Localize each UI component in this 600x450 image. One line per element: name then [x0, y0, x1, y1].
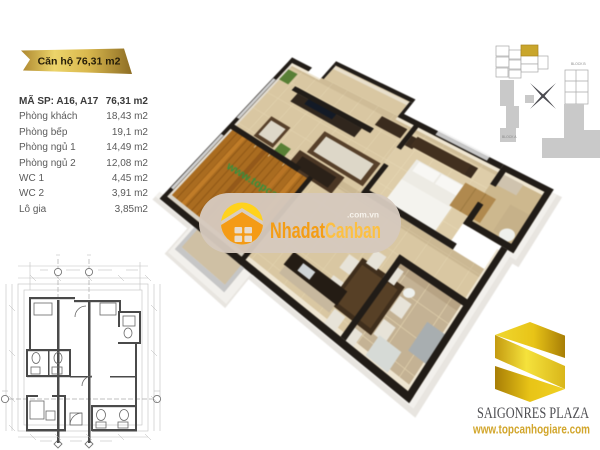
svg-text:Canban: Canban — [325, 218, 381, 243]
svg-text:Căn hộ 76,31 m2: Căn hộ 76,31 m2 — [38, 56, 121, 68]
svg-text:.com.vn: .com.vn — [347, 210, 379, 220]
svg-text:SAIGONRES PLAZA: SAIGONRES PLAZA — [477, 405, 590, 422]
svg-text:BLOCK B: BLOCK B — [571, 62, 586, 66]
svg-text:BLOCK A: BLOCK A — [502, 135, 517, 139]
svg-text:www.topcanhogiare.com: www.topcanhogiare.com — [472, 423, 590, 437]
svg-text:Nhadat: Nhadat — [270, 218, 325, 243]
